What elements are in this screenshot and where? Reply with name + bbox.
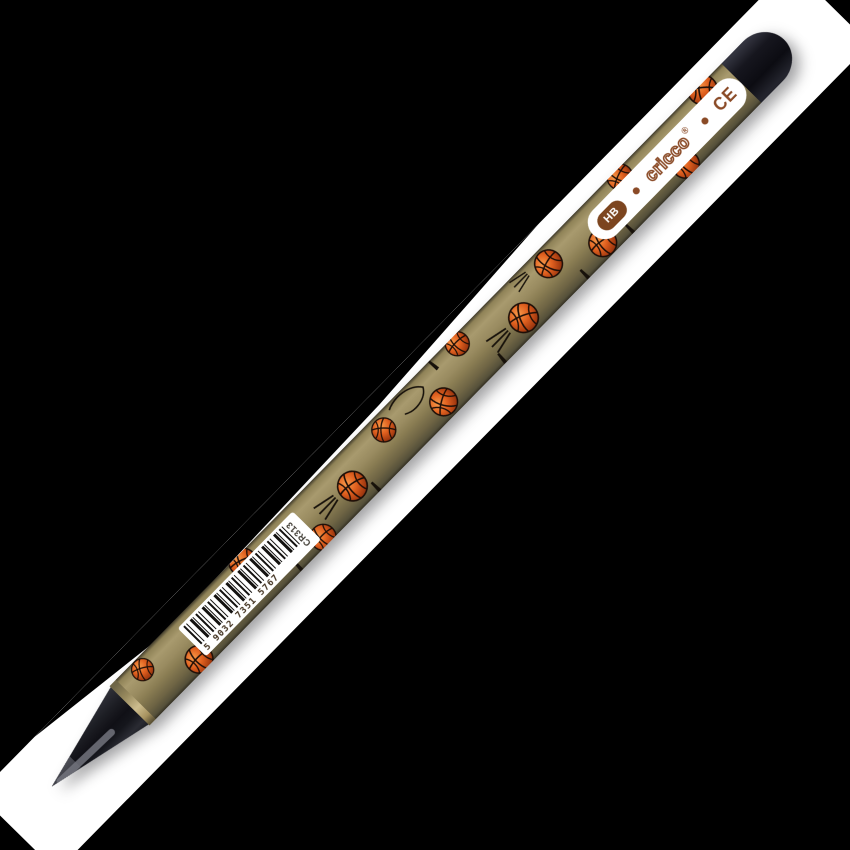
brand-panel: HB cricco® CE	[581, 71, 754, 246]
pencil-barrel: HB cricco® CE 5 9032 7351 5767 CR313	[116, 62, 763, 719]
white-backdrop-strip: HB cricco® CE 5 9032 7351 5767 CR313	[0, 0, 850, 850]
ground-mark-icon	[497, 352, 508, 364]
ce-mark: CE	[709, 83, 742, 116]
ground-mark-icon	[579, 268, 590, 279]
separator-dot-icon	[631, 186, 641, 196]
basketball-icon	[128, 655, 158, 685]
basketball-icon	[439, 325, 476, 362]
tip-highlight	[55, 727, 116, 786]
pencil: HB cricco® CE 5 9032 7351 5767 CR313	[31, 20, 804, 805]
basketball-icon	[371, 417, 397, 443]
ground-mark-icon	[428, 360, 440, 371]
grade-badge: HB	[593, 196, 630, 234]
separator-dot-icon	[699, 116, 709, 126]
basketball-icon	[425, 384, 462, 421]
product-photo: HB cricco® CE 5 9032 7351 5767 CR313	[0, 0, 850, 850]
